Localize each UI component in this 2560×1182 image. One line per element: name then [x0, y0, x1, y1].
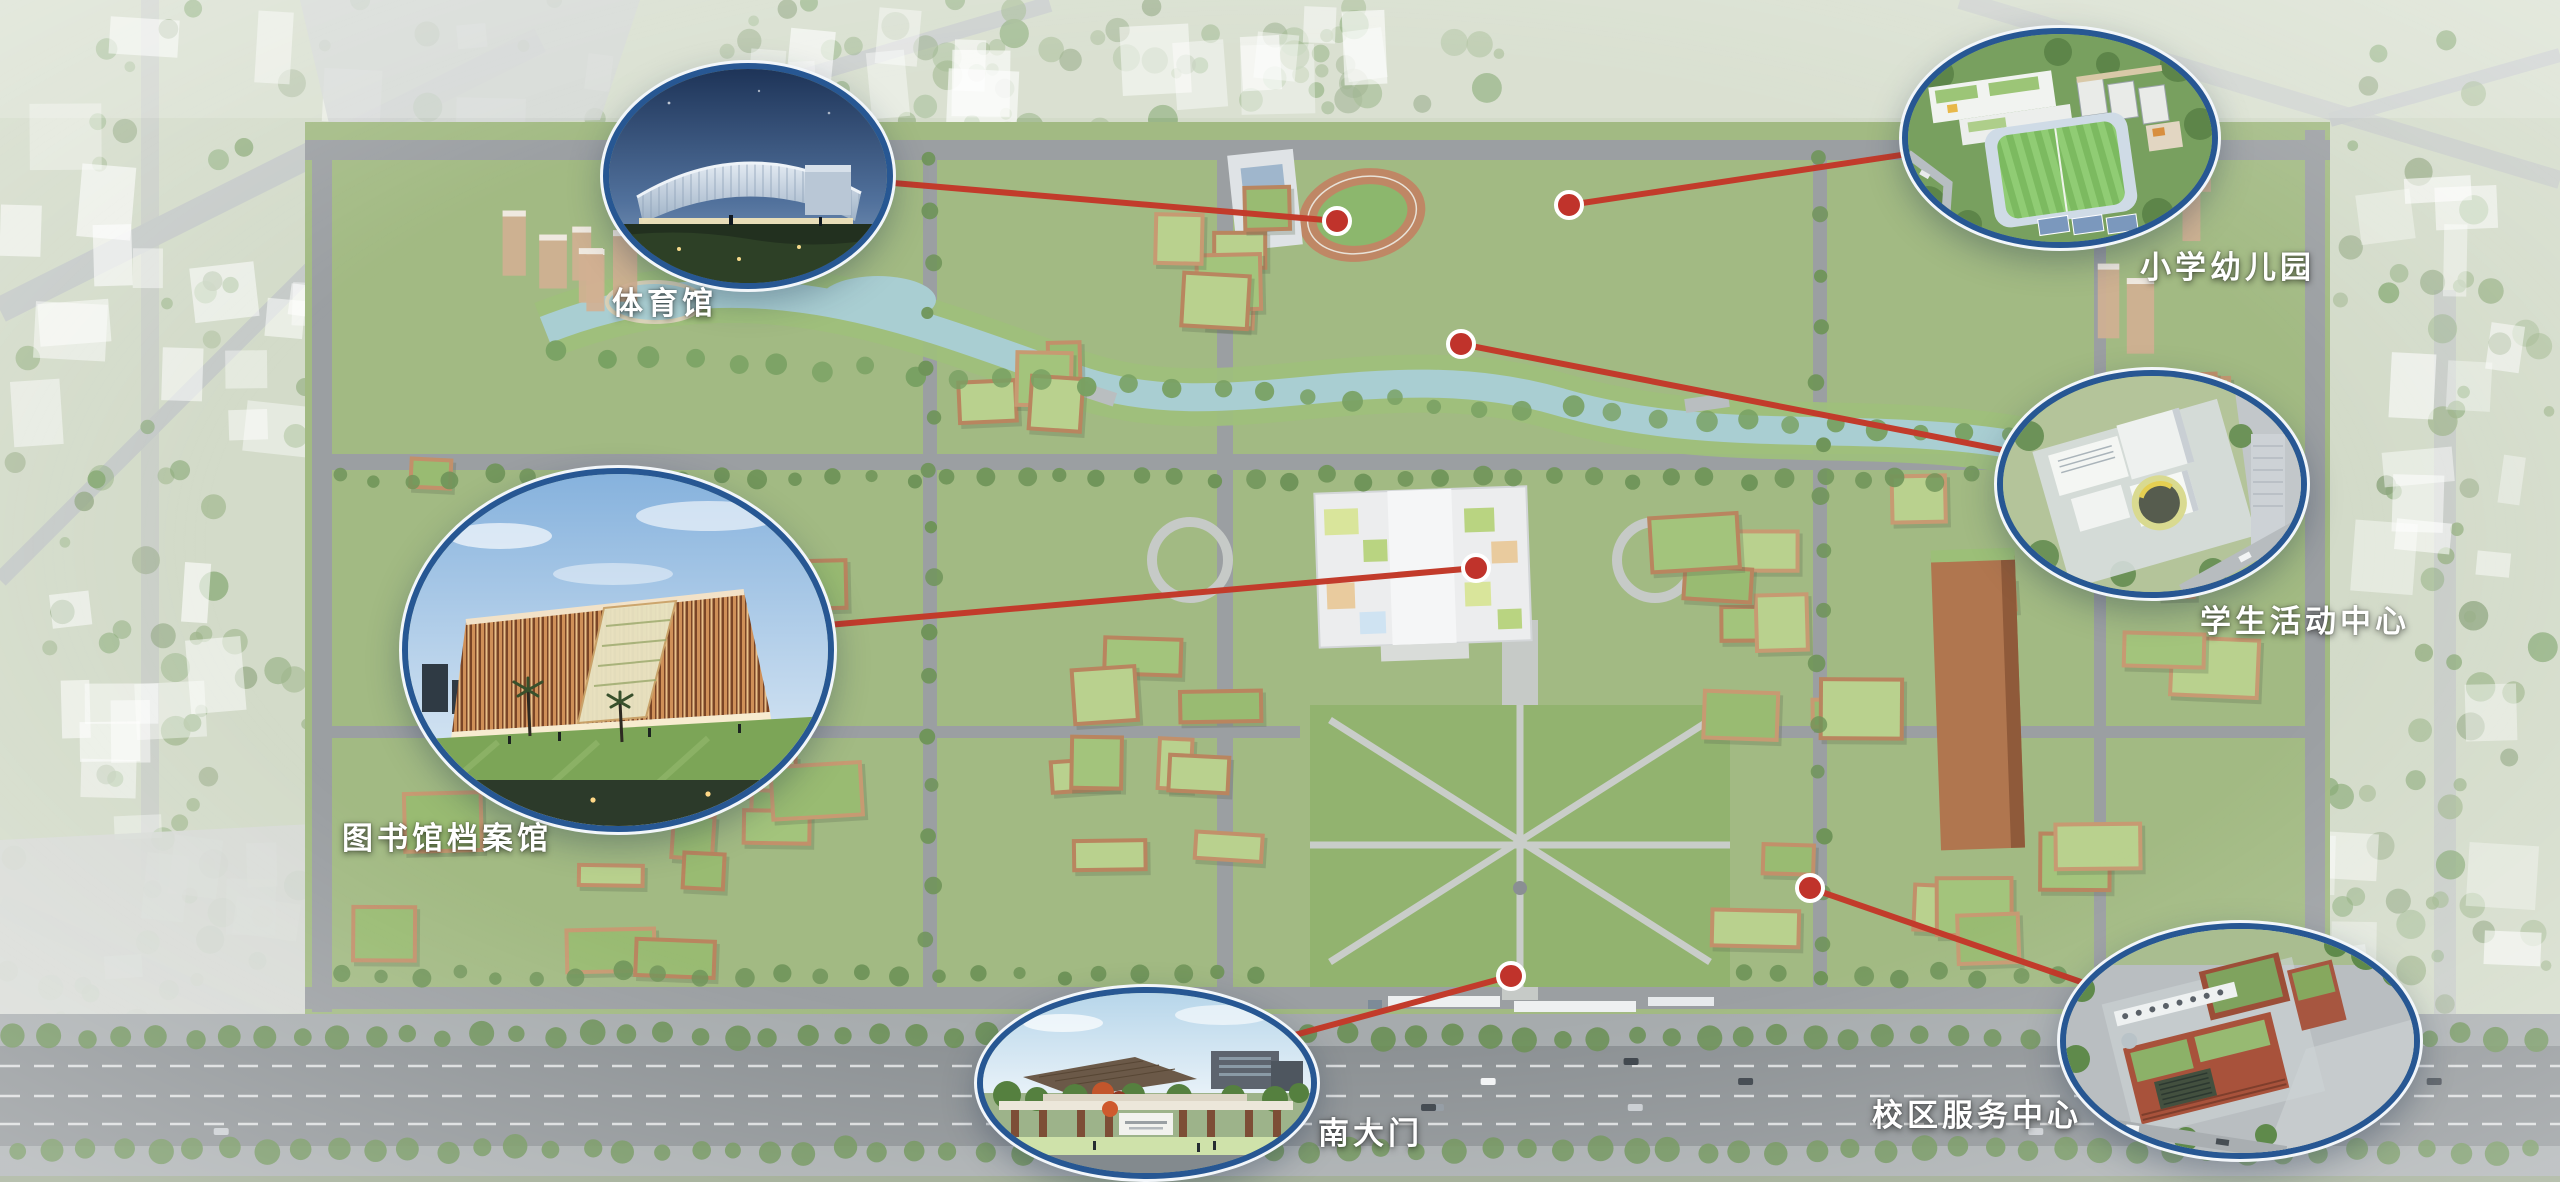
label-student-activity-center: 学生活动中心 [2200, 596, 2410, 641]
label-south-gate: 南大门 [1318, 1108, 1423, 1153]
callout-campus-service-center [2060, 923, 2420, 1159]
student-activity-center-photo [2003, 376, 2301, 592]
label-campus-service-center: 校区服务中心 [1872, 1090, 2082, 1135]
callout-gymnasium [603, 63, 893, 289]
campus-service-center-photo [2066, 929, 2414, 1153]
callout-library-archives [402, 468, 834, 832]
campus-masterplan-image: 体育馆 小学幼儿园 学生活动中心 图书馆档案馆 南大门 校区服务中心 [0, 0, 2560, 1182]
callout-south-gate [977, 987, 1317, 1179]
south-gate-photo [983, 993, 1311, 1173]
library-archives-photo [408, 474, 828, 826]
primary-school-photo [1908, 34, 2212, 242]
callout-student-activity-center [1997, 370, 2307, 598]
gymnasium-photo [609, 69, 887, 283]
label-gymnasium: 体育馆 [612, 278, 717, 323]
label-primary-school-kindergarten: 小学幼儿园 [2140, 242, 2315, 287]
label-library-archives: 图书馆档案馆 [342, 813, 552, 858]
callout-primary-school-kindergarten [1902, 28, 2218, 248]
